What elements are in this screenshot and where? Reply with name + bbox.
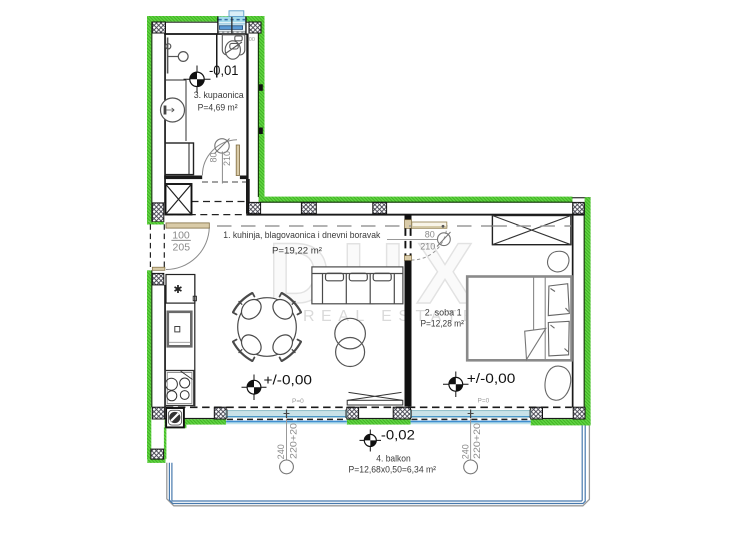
svg-text:240: 240 xyxy=(276,444,286,459)
svg-text:00: 00 xyxy=(249,37,255,43)
svg-text:P=4,69 m²: P=4,69 m² xyxy=(198,103,238,114)
svg-text:3. kupaonica: 3. kupaonica xyxy=(194,90,245,101)
svg-text:P=12,28 m²: P=12,28 m² xyxy=(420,318,464,329)
svg-text:80: 80 xyxy=(209,152,219,162)
svg-text:✱: ✱ xyxy=(173,284,182,296)
svg-text:-0,01: -0,01 xyxy=(209,62,239,78)
svg-text:80: 80 xyxy=(425,229,435,239)
svg-text:4. balkon: 4. balkon xyxy=(376,454,411,465)
svg-text:220+20: 220+20 xyxy=(288,423,298,459)
svg-text:-0,02: -0,02 xyxy=(381,427,415,443)
svg-text:205: 205 xyxy=(173,241,191,253)
svg-text:P=19,22 m²: P=19,22 m² xyxy=(272,246,322,257)
svg-text:P=0: P=0 xyxy=(292,398,304,405)
svg-text:1. kuhinja, blagovaonica i dne: 1. kuhinja, blagovaonica i dnevni borava… xyxy=(223,230,380,241)
svg-text:+/-0,00: +/-0,00 xyxy=(264,371,313,387)
svg-text:P=0: P=0 xyxy=(478,398,490,405)
svg-text:P=12,68x0,50=6,34 m²: P=12,68x0,50=6,34 m² xyxy=(349,464,437,475)
svg-text:240: 240 xyxy=(461,444,471,459)
svg-text:210: 210 xyxy=(420,242,435,252)
svg-text:2. soba 1: 2. soba 1 xyxy=(425,308,462,319)
svg-text:+/-0,00: +/-0,00 xyxy=(467,370,516,386)
svg-text:210: 210 xyxy=(222,151,232,166)
svg-text:220+20: 220+20 xyxy=(472,423,482,459)
